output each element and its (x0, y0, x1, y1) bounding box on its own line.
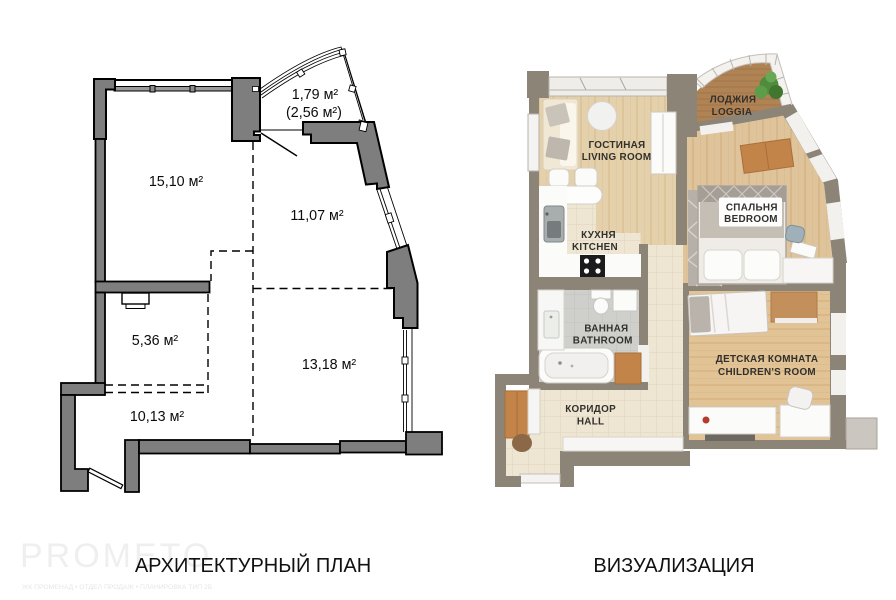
svg-text:ВАННАЯ: ВАННАЯ (584, 324, 628, 335)
svg-text:ЛОДЖИЯ: ЛОДЖИЯ (710, 95, 756, 106)
svg-text:KITCHEN: KITCHEN (572, 242, 618, 253)
svg-text:5,36 м²: 5,36 м² (132, 333, 179, 349)
svg-text:LOGGIA: LOGGIA (712, 107, 753, 118)
svg-text:13,18 м²: 13,18 м² (302, 357, 357, 373)
svg-text:(2,56 м²): (2,56 м²) (286, 105, 342, 121)
svg-text:LIVING ROOM: LIVING ROOM (582, 152, 652, 163)
svg-text:КОРИДОР: КОРИДОР (565, 404, 616, 415)
svg-text:HALL: HALL (577, 417, 605, 428)
svg-text:15,10 м²: 15,10 м² (149, 174, 204, 190)
svg-text:BATHROOM: BATHROOM (573, 336, 633, 347)
svg-text:АРХИТЕКТУРНЫЙ ПЛАН: АРХИТЕКТУРНЫЙ ПЛАН (135, 553, 371, 577)
svg-text:10,13 м²: 10,13 м² (130, 409, 185, 425)
svg-text:CHILDREN'S ROOM: CHILDREN'S ROOM (718, 367, 816, 378)
svg-text:11,07 м²: 11,07 м² (290, 208, 344, 224)
svg-text:ГОСТИНАЯ: ГОСТИНАЯ (589, 140, 646, 151)
svg-text:КУХНЯ: КУХНЯ (581, 230, 616, 241)
svg-text:СПАЛЬНЯ: СПАЛЬНЯ (726, 203, 778, 214)
svg-text:1,79 м²: 1,79 м² (292, 87, 339, 103)
svg-text:BEDROOM: BEDROOM (724, 214, 778, 225)
svg-text:ЖК ПРОМЕНАД • ОТДЕЛ ПРОДАЖ • П: ЖК ПРОМЕНАД • ОТДЕЛ ПРОДАЖ • ПЛАНИРОВКА … (22, 584, 213, 591)
svg-text:ДЕТСКАЯ КОМНАТА: ДЕТСКАЯ КОМНАТА (716, 354, 819, 365)
svg-text:ВИЗУАЛИЗАЦИЯ: ВИЗУАЛИЗАЦИЯ (593, 555, 754, 577)
